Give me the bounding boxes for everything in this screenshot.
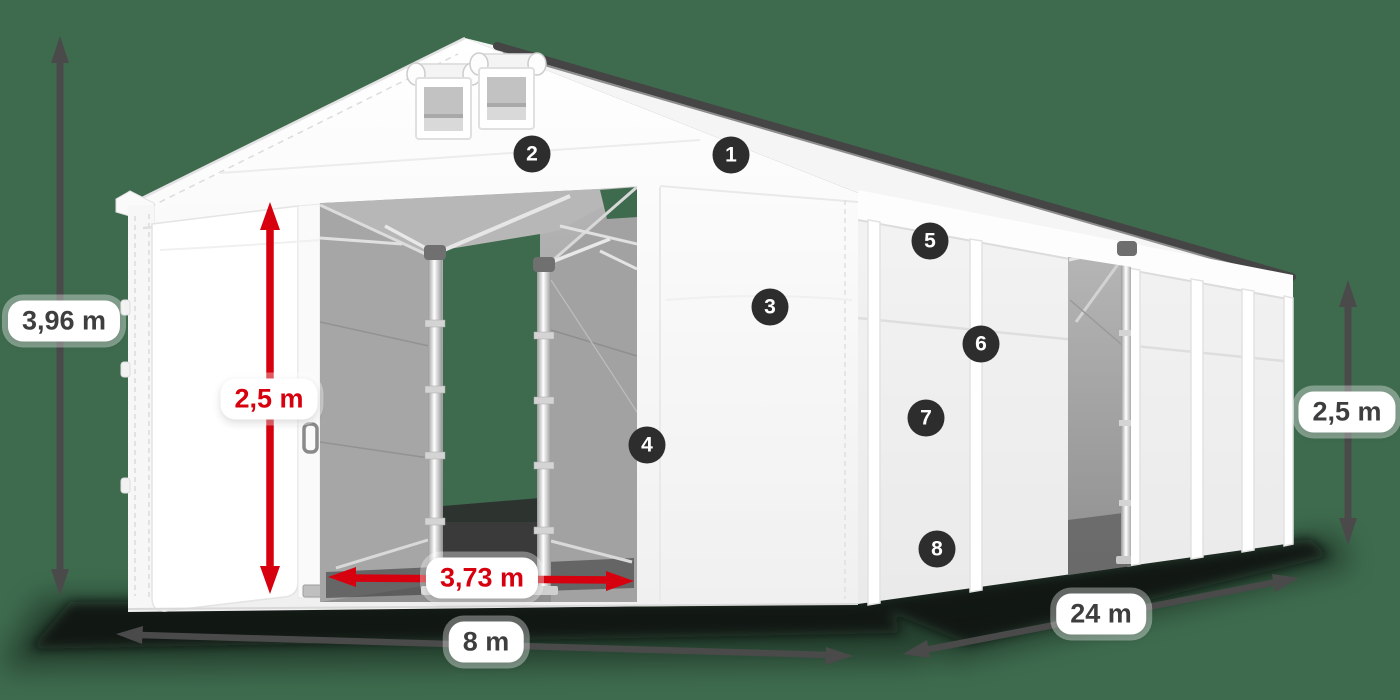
feature-badge-3: 3 (752, 289, 789, 326)
feature-badge-6: 6 (963, 326, 1000, 363)
front-corner-band (128, 205, 154, 609)
label-side-height: 2,5 m (1298, 392, 1395, 433)
tent-dimension-diagram: 3,96 m 2,5 m 3,73 m 8 m 24 m 2,5 m 1 2 3… (0, 0, 1400, 700)
side-entrance-opening (1068, 241, 1137, 575)
vent-window-left (407, 63, 481, 139)
tent-illustration (0, 0, 1400, 700)
feature-badge-4: 4 (629, 427, 666, 464)
label-front-width: 8 m (449, 622, 524, 663)
front-door-opening-interior (320, 187, 637, 602)
feature-badge-8: 8 (919, 531, 956, 568)
side-opening-pole (1121, 250, 1132, 562)
feature-badge-1: 1 (713, 137, 750, 174)
interior-left-wall (320, 203, 429, 602)
vent-window-right (470, 53, 546, 129)
label-side-length: 24 m (1056, 594, 1146, 635)
label-door-width: 3,73 m (426, 558, 538, 599)
label-door-height: 2,5 m (220, 379, 317, 420)
label-total-height: 3,96 m (8, 301, 120, 342)
feature-badge-7: 7 (908, 400, 945, 437)
side-pole-fitting (1117, 241, 1137, 256)
see-through-gap (443, 234, 540, 522)
feature-badge-2: 2 (514, 136, 551, 173)
feature-badge-5: 5 (912, 223, 949, 260)
